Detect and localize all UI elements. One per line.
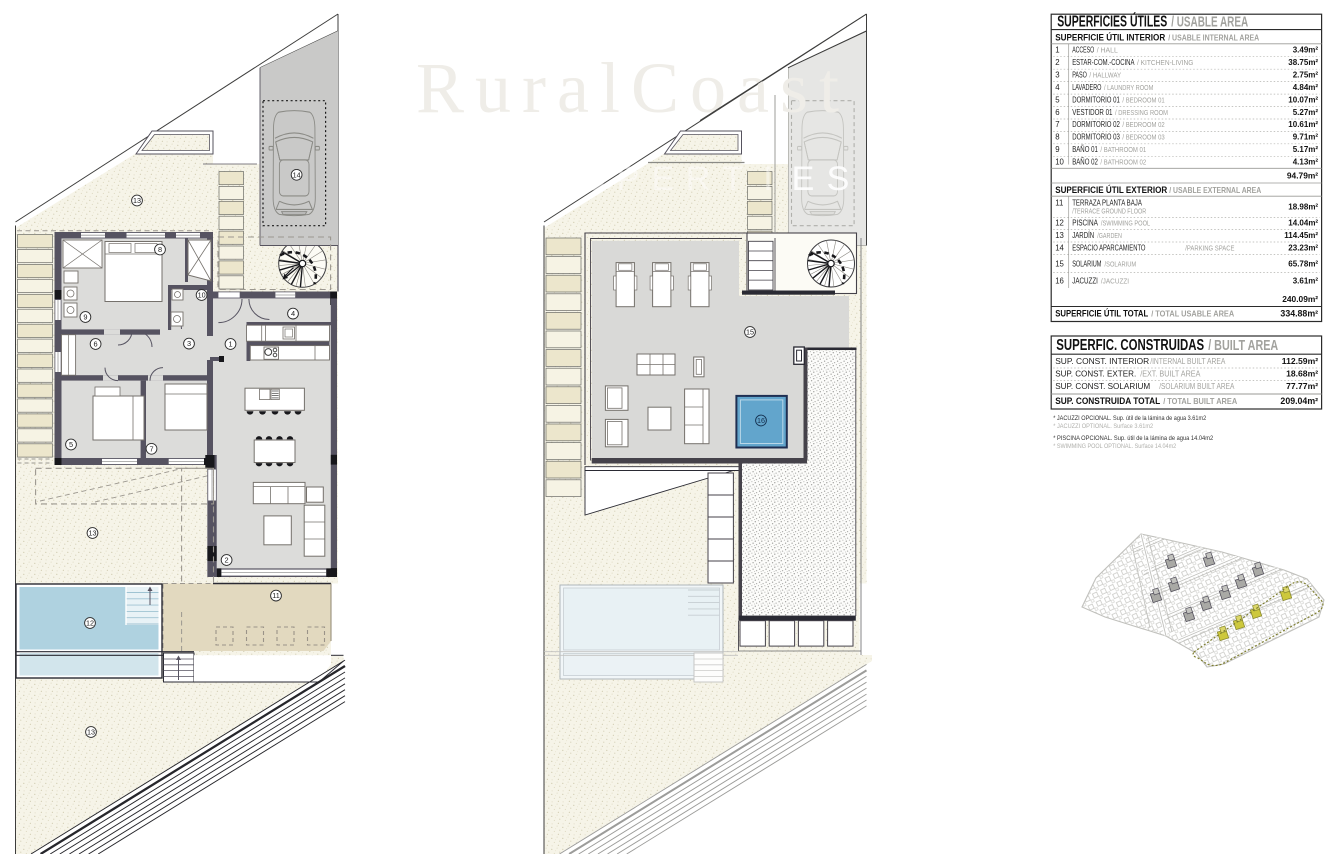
svg-text:334.88m²: 334.88m² [1280, 309, 1318, 319]
svg-text:SUP. CONSTRUIDA TOTAL: SUP. CONSTRUIDA TOTAL [1055, 396, 1160, 406]
svg-text:/ LAUNDRY ROOM: / LAUNDRY ROOM [1104, 83, 1153, 92]
svg-text:/ TOTAL USABLE AREA: / TOTAL USABLE AREA [1151, 309, 1234, 319]
svg-text:SUP. CONST. EXTER.: SUP. CONST. EXTER. [1055, 369, 1136, 379]
svg-text:VESTIDOR 01: VESTIDOR 01 [1072, 108, 1112, 117]
svg-text:15: 15 [1055, 260, 1064, 269]
svg-text:/ BEDROOM 03: / BEDROOM 03 [1122, 133, 1164, 142]
svg-text:11: 11 [272, 591, 279, 600]
svg-text:9.71m²: 9.71m² [1293, 133, 1319, 142]
svg-text:5: 5 [69, 440, 73, 449]
svg-text:/JACUZZI: /JACUZZI [1101, 277, 1129, 286]
svg-text:10: 10 [198, 291, 206, 300]
svg-text:RuralCoast: RuralCoast [416, 48, 850, 128]
svg-text:13: 13 [1055, 231, 1064, 240]
svg-text:1: 1 [228, 340, 232, 349]
svg-text:SUP. CONST. SOLARIUM: SUP. CONST. SOLARIUM [1055, 381, 1150, 391]
svg-text:/GARDEN: /GARDEN [1097, 231, 1122, 240]
svg-text:5: 5 [1055, 95, 1060, 104]
svg-text:9: 9 [1055, 145, 1059, 154]
svg-text:2.75m²: 2.75m² [1293, 70, 1319, 79]
svg-text:/ HALLWAY: / HALLWAY [1089, 70, 1121, 79]
svg-text:SUPERFICIES ÚTILES: SUPERFICIES ÚTILES [1057, 11, 1167, 30]
svg-text:10.61m²: 10.61m² [1288, 120, 1318, 129]
svg-text:/SOLARIUM BUILT AREA: /SOLARIUM BUILT AREA [1159, 382, 1235, 391]
svg-text:/ BEDROOM 02: / BEDROOM 02 [1122, 120, 1164, 129]
svg-text:/ USABLE AREA: / USABLE AREA [1171, 13, 1248, 30]
svg-text:8: 8 [158, 245, 162, 254]
svg-text:2: 2 [1055, 58, 1059, 67]
svg-text:SUPERFICIE ÚTIL TOTAL: SUPERFICIE ÚTIL TOTAL [1055, 308, 1148, 319]
svg-text:14: 14 [1055, 244, 1064, 253]
svg-text:P: P [512, 160, 535, 198]
svg-text:94.79m²: 94.79m² [1287, 171, 1318, 181]
svg-text:R: R [686, 160, 711, 198]
svg-text:16: 16 [757, 416, 765, 425]
svg-text:240.09m²: 240.09m² [1282, 294, 1318, 304]
svg-text:112.59m²: 112.59m² [1282, 356, 1318, 366]
svg-text:DORMITORIO 02: DORMITORIO 02 [1072, 120, 1120, 129]
svg-text:SUP. CONST. INTERIOR: SUP. CONST. INTERIOR [1055, 356, 1149, 366]
svg-text:14.04m²: 14.04m² [1288, 219, 1318, 228]
svg-text:6: 6 [1055, 108, 1059, 117]
svg-text:O: O [580, 160, 606, 198]
svg-text:/ BATHROOM 01: / BATHROOM 01 [1100, 145, 1146, 154]
svg-text:T: T [723, 160, 744, 198]
svg-text:* JACUZZI OPTIONAL. Surface 3.: * JACUZZI OPTIONAL. Surface 3.61m2 [1053, 423, 1153, 430]
svg-text:/ USABLE EXTERNAL AREA: / USABLE EXTERNAL AREA [1169, 185, 1261, 195]
svg-text:12: 12 [86, 619, 94, 628]
svg-text:11: 11 [1055, 199, 1063, 208]
svg-text:R: R [546, 160, 571, 198]
svg-text:I: I [763, 160, 772, 198]
svg-text:DORMITORIO 03: DORMITORIO 03 [1072, 133, 1120, 142]
svg-text:3: 3 [187, 339, 191, 348]
svg-text:/ TOTAL BUILT AREA: / TOTAL BUILT AREA [1163, 396, 1237, 406]
svg-text:PISCINA: PISCINA [1072, 219, 1098, 228]
svg-text:13: 13 [133, 196, 141, 205]
svg-text:/ DRESSING ROOM: / DRESSING ROOM [1115, 108, 1168, 117]
svg-text:/EXT. BUILT AREA: /EXT. BUILT AREA [1140, 370, 1201, 379]
svg-text:15: 15 [746, 328, 754, 337]
svg-text:JACUZZI: JACUZZI [1072, 277, 1098, 286]
svg-text:/ KITCHEN-LIVING: / KITCHEN-LIVING [1137, 58, 1194, 67]
svg-text:5.17m²: 5.17m² [1293, 145, 1319, 154]
svg-text:38.75m²: 38.75m² [1288, 58, 1318, 67]
svg-text:18.68m²: 18.68m² [1286, 369, 1318, 379]
svg-text:10.07m²: 10.07m² [1288, 95, 1318, 104]
svg-text:/SOLARIUM: /SOLARIUM [1105, 260, 1137, 269]
svg-text:/ BEDROOM 01: / BEDROOM 01 [1122, 95, 1164, 104]
svg-text:SUPERFICIE ÚTIL INTERIOR: SUPERFICIE ÚTIL INTERIOR [1055, 32, 1165, 43]
svg-text:9: 9 [83, 313, 87, 322]
svg-text:2: 2 [225, 556, 229, 565]
svg-text:5.27m²: 5.27m² [1293, 108, 1319, 117]
svg-text:E: E [792, 160, 815, 198]
svg-text:ACCESO: ACCESO [1072, 46, 1094, 55]
svg-text:ESPACIO APARCAMIENTO: ESPACIO APARCAMIENTO [1072, 244, 1145, 253]
svg-text:3.61m²: 3.61m² [1293, 277, 1319, 286]
svg-text:12: 12 [1055, 219, 1064, 228]
svg-text:/TERRACE GROUND FLOOR: /TERRACE GROUND FLOOR [1072, 207, 1146, 216]
svg-text:/ HALL: / HALL [1097, 46, 1118, 55]
svg-text:SOLARIUM: SOLARIUM [1072, 260, 1101, 269]
svg-text:114.45m²: 114.45m² [1284, 231, 1318, 240]
svg-text:/ BATHROOM 02: / BATHROOM 02 [1100, 158, 1146, 167]
svg-text:13: 13 [87, 728, 95, 737]
svg-text:65.78m²: 65.78m² [1288, 260, 1318, 269]
svg-text:E: E [652, 160, 675, 198]
svg-text:/INTERNAL BUILT AREA: /INTERNAL BUILT AREA [1150, 357, 1226, 366]
svg-text:7: 7 [149, 444, 153, 453]
svg-text:/PARKING SPACE: /PARKING SPACE [1185, 244, 1234, 253]
svg-text:10: 10 [1055, 158, 1064, 167]
svg-text:4: 4 [291, 309, 295, 318]
svg-text:BAÑO 01: BAÑO 01 [1072, 145, 1098, 154]
svg-text:S: S [827, 160, 850, 198]
svg-text:/ BUILT AREA: / BUILT AREA [1208, 338, 1278, 354]
svg-text:4: 4 [1055, 83, 1060, 92]
svg-text:13: 13 [89, 529, 97, 538]
svg-text:4.13m²: 4.13m² [1293, 158, 1319, 167]
svg-text:BAÑO 02: BAÑO 02 [1072, 158, 1098, 167]
svg-text:SUPERFIC. CONSTRUIDAS: SUPERFIC. CONSTRUIDAS [1056, 337, 1204, 354]
svg-text:LAVADERO: LAVADERO [1072, 83, 1101, 92]
svg-text:/SWIMMING POOL: /SWIMMING POOL [1101, 219, 1150, 228]
svg-text:* PISCINA OPCIONAL. Sup. útil: * PISCINA OPCIONAL. Sup. útil de la lámi… [1053, 435, 1213, 442]
svg-text:* JACUZZI OPCIONAL. Sup. útil: * JACUZZI OPCIONAL. Sup. útil de la lámi… [1053, 415, 1206, 422]
svg-text:/ USABLE INTERNAL AREA: / USABLE INTERNAL AREA [1168, 33, 1259, 43]
svg-text:14: 14 [293, 170, 301, 179]
svg-text:77.77m²: 77.77m² [1286, 381, 1318, 391]
svg-text:6: 6 [94, 340, 98, 349]
svg-text:4.84m²: 4.84m² [1293, 83, 1319, 92]
svg-text:3.49m²: 3.49m² [1293, 46, 1319, 55]
svg-text:SUPERFICIE ÚTIL EXTERIOR: SUPERFICIE ÚTIL EXTERIOR [1055, 184, 1167, 195]
svg-text:PASO: PASO [1072, 70, 1087, 79]
svg-text:8: 8 [1055, 133, 1059, 142]
svg-text:1: 1 [1055, 46, 1059, 55]
svg-text:JARDÍN: JARDÍN [1072, 231, 1094, 240]
svg-text:* SWIMMING POOL OPTIONAL. Surf: * SWIMMING POOL OPTIONAL. Surface 14.04m… [1053, 443, 1176, 450]
svg-text:209.04m²: 209.04m² [1280, 396, 1318, 406]
svg-text:P: P [617, 160, 640, 198]
svg-text:3: 3 [1055, 70, 1059, 79]
svg-text:DORMITORIO 01: DORMITORIO 01 [1072, 95, 1120, 104]
svg-text:ESTAR-COM.-COCINA: ESTAR-COM.-COCINA [1072, 58, 1135, 67]
svg-text:7: 7 [1055, 120, 1059, 129]
svg-text:18.98m²: 18.98m² [1288, 203, 1318, 212]
svg-text:16: 16 [1055, 277, 1064, 286]
svg-text:23.23m²: 23.23m² [1288, 244, 1318, 253]
